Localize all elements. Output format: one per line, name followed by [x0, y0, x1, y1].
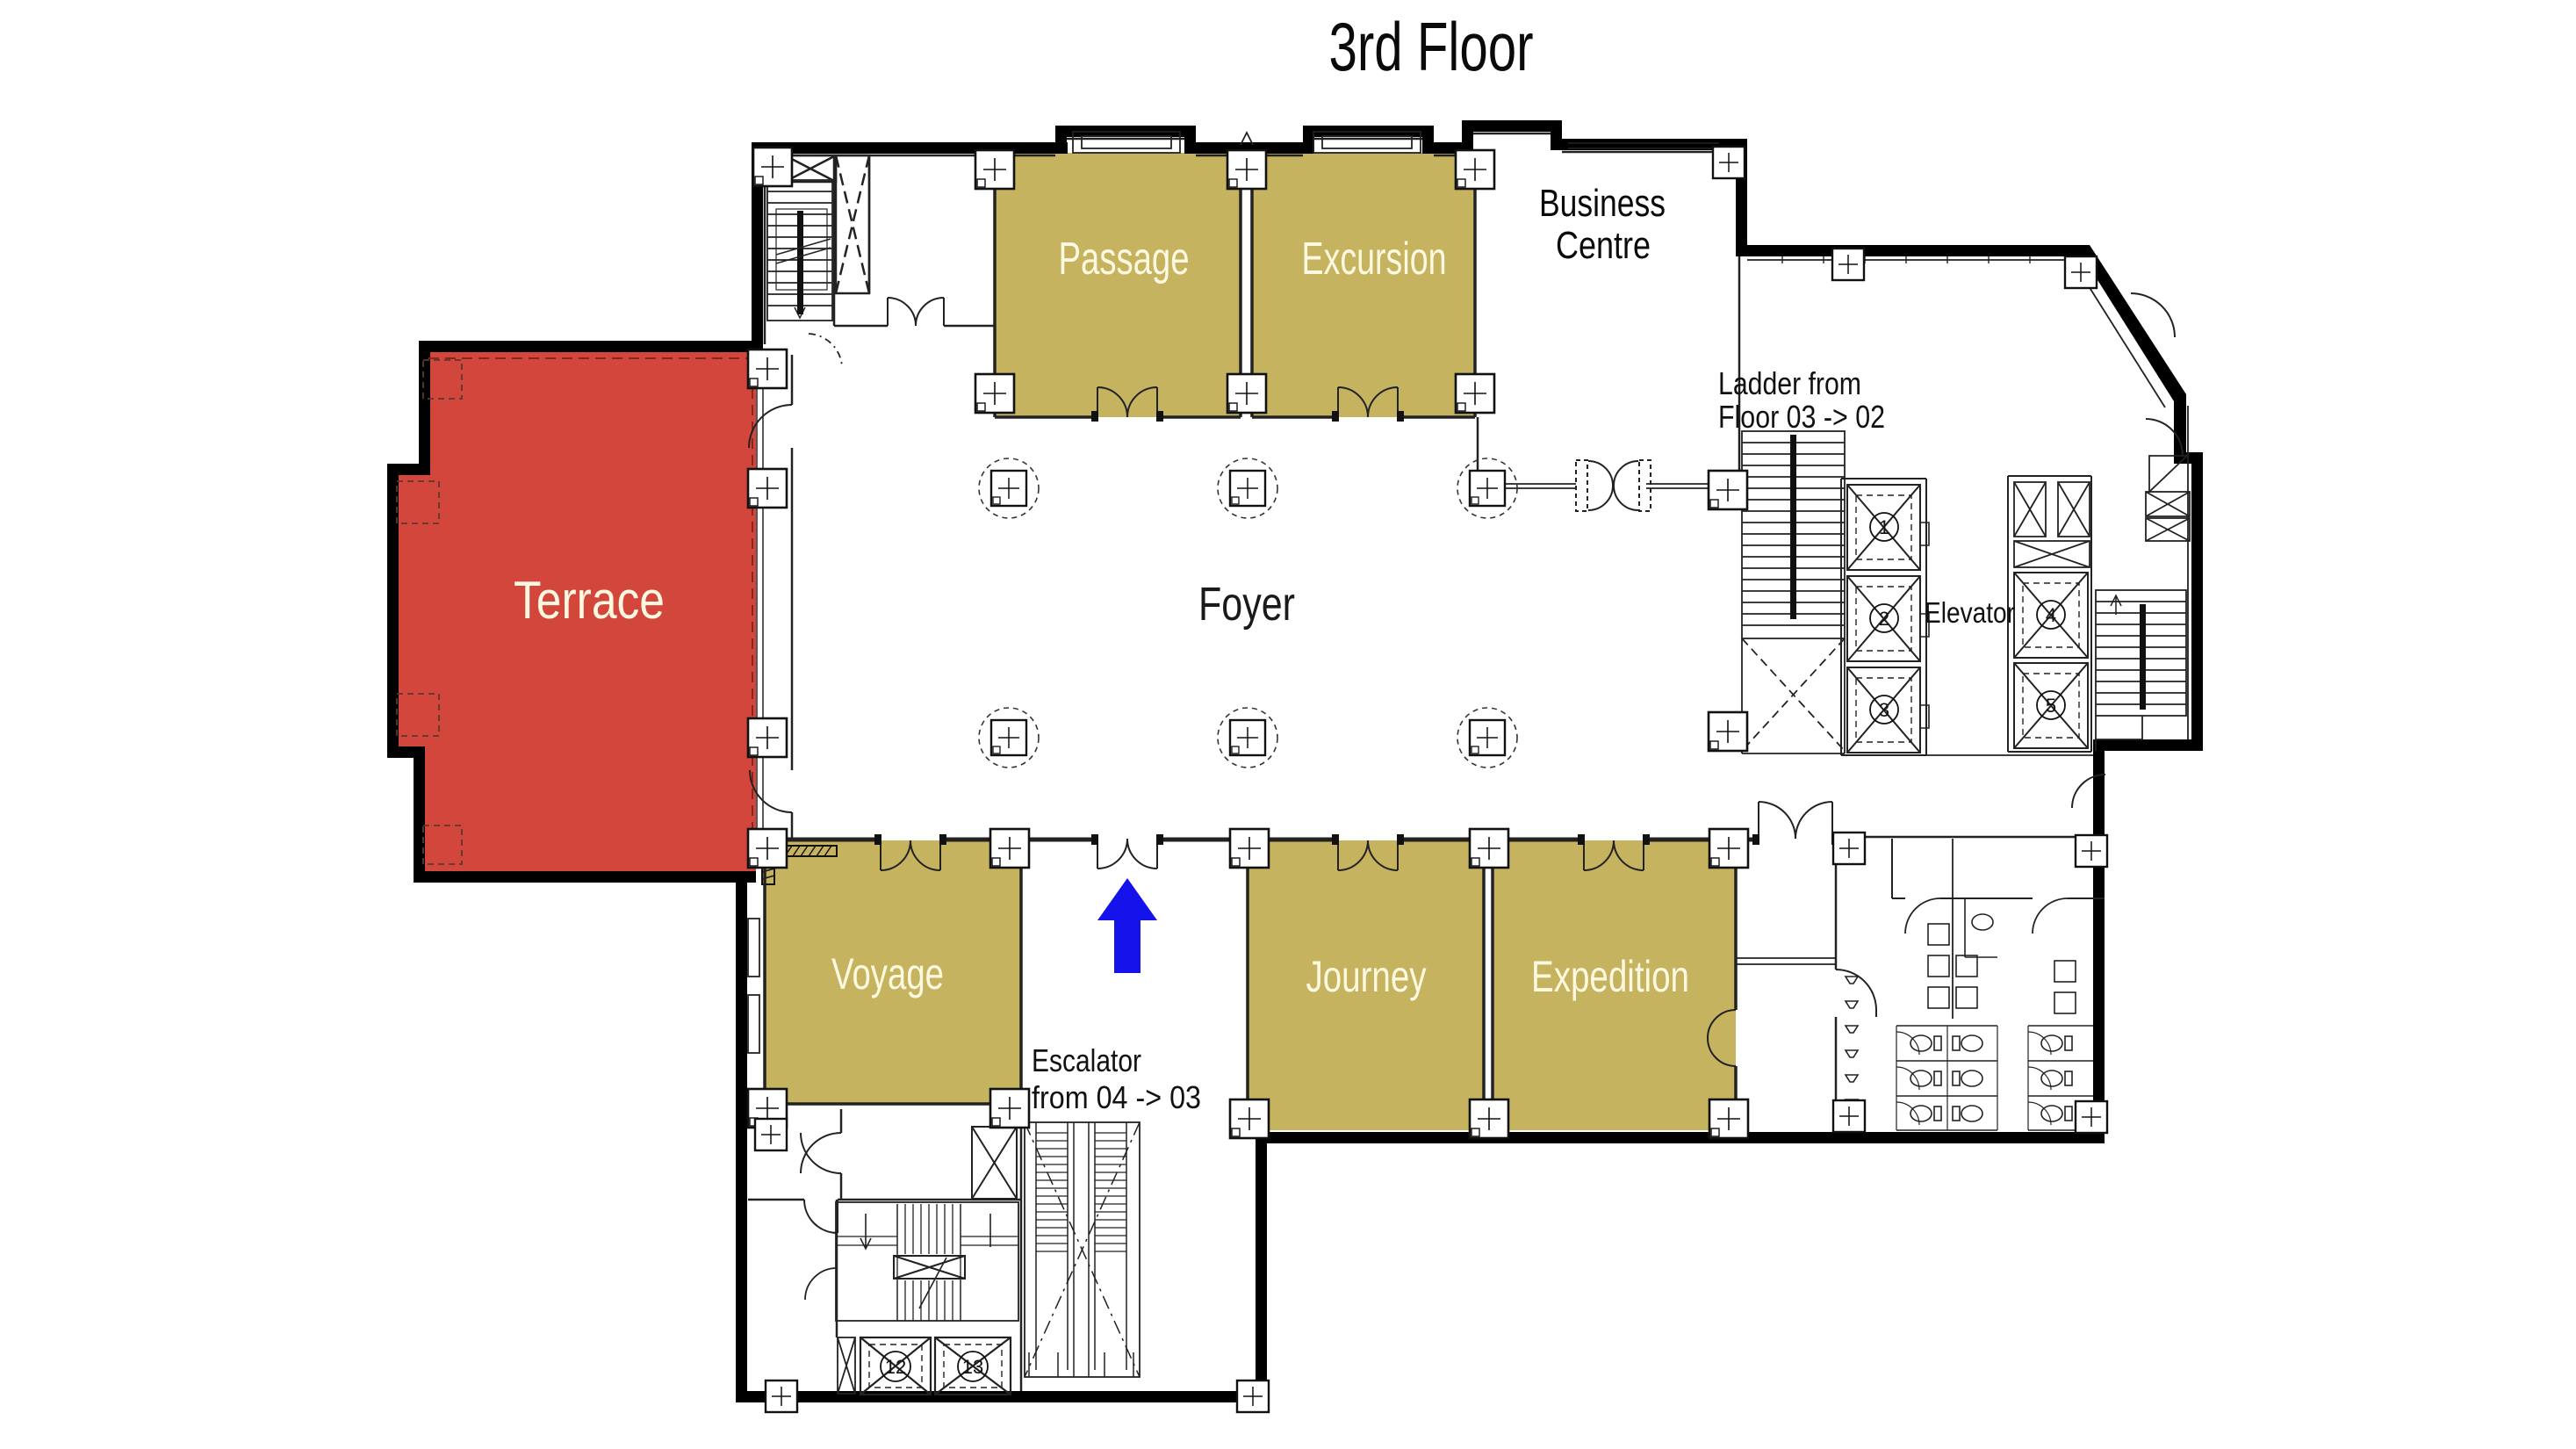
svg-text:3rd Floor: 3rd Floor: [1329, 8, 1534, 85]
svg-text:2: 2: [1879, 608, 1889, 630]
svg-text:1: 1: [1879, 516, 1889, 538]
svg-text:3: 3: [1879, 699, 1889, 721]
svg-text:Floor 03 -> 02: Floor 03 -> 02: [1718, 399, 1885, 435]
svg-text:Elevator: Elevator: [1925, 596, 2015, 629]
svg-text:Ladder from: Ladder from: [1718, 365, 1861, 401]
svg-text:Expedition: Expedition: [1531, 952, 1689, 1001]
svg-text:Centre: Centre: [1556, 224, 1651, 267]
svg-text:from 04 -> 03: from 04 -> 03: [1032, 1079, 1201, 1115]
svg-text:Foyer: Foyer: [1198, 578, 1295, 631]
svg-text:4: 4: [2046, 604, 2056, 626]
svg-text:Voyage: Voyage: [831, 949, 944, 998]
svg-text:Terrace: Terrace: [514, 571, 665, 630]
svg-text:Business: Business: [1539, 182, 1666, 225]
svg-text:Passage: Passage: [1059, 234, 1190, 285]
svg-text:Journey: Journey: [1306, 952, 1427, 1001]
svg-text:12: 12: [885, 1356, 906, 1378]
svg-text:Escalator: Escalator: [1032, 1042, 1141, 1078]
svg-text:Excursion: Excursion: [1302, 234, 1447, 285]
svg-text:13: 13: [962, 1356, 983, 1378]
svg-text:5: 5: [2046, 695, 2056, 717]
